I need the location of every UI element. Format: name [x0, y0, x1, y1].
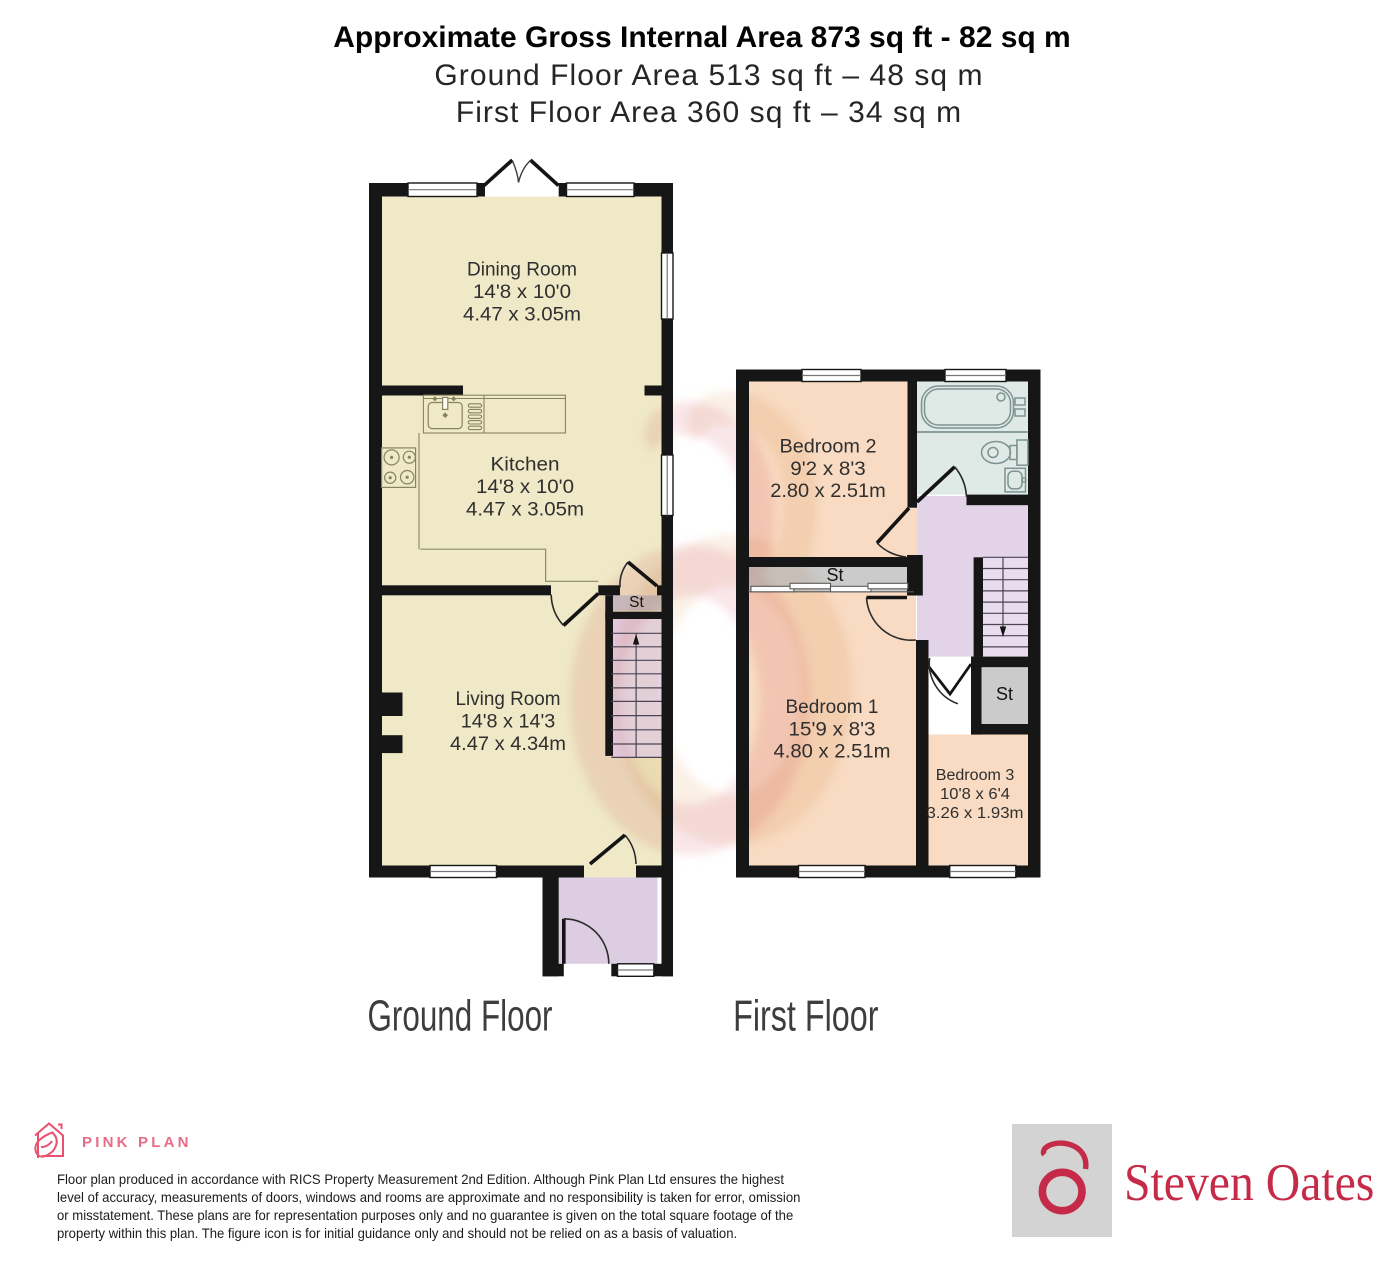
svg-text:Dining Room: Dining Room [467, 260, 577, 281]
svg-text:14'8 x 14'3: 14'8 x 14'3 [461, 711, 556, 732]
svg-text:10'8 x 6'4: 10'8 x 6'4 [940, 786, 1010, 803]
svg-text:Kitchen: Kitchen [491, 455, 560, 476]
svg-text:St: St [996, 684, 1013, 704]
svg-text:3.26 x 1.93m: 3.26 x 1.93m [927, 805, 1024, 822]
svg-text:Bedroom 3: Bedroom 3 [936, 767, 1015, 784]
svg-text:Bedroom 1: Bedroom 1 [786, 697, 879, 718]
svg-text:4.80 x 2.51m: 4.80 x 2.51m [774, 742, 891, 763]
svg-text:First Floor: First Floor [733, 993, 878, 1041]
svg-text:4.47 x 4.34m: 4.47 x 4.34m [450, 734, 566, 755]
svg-text:4.47 x 3.05m: 4.47 x 3.05m [463, 304, 581, 325]
svg-text:Bedroom 2: Bedroom 2 [780, 436, 877, 457]
svg-text:14'8 x 10'0: 14'8 x 10'0 [476, 477, 574, 498]
svg-text:Ground Floor: Ground Floor [368, 993, 553, 1041]
svg-text:4.47 x 3.05m: 4.47 x 3.05m [466, 500, 584, 521]
svg-text:St: St [629, 594, 644, 611]
svg-text:2.80 x 2.51m: 2.80 x 2.51m [770, 481, 886, 502]
svg-text:15'9 x 8'3: 15'9 x 8'3 [789, 719, 876, 740]
svg-text:Living Room: Living Room [456, 689, 561, 710]
svg-text:14'8 x 10'0: 14'8 x 10'0 [473, 282, 571, 303]
svg-text:St: St [826, 565, 843, 585]
svg-text:9'2 x 8'3: 9'2 x 8'3 [790, 459, 866, 480]
